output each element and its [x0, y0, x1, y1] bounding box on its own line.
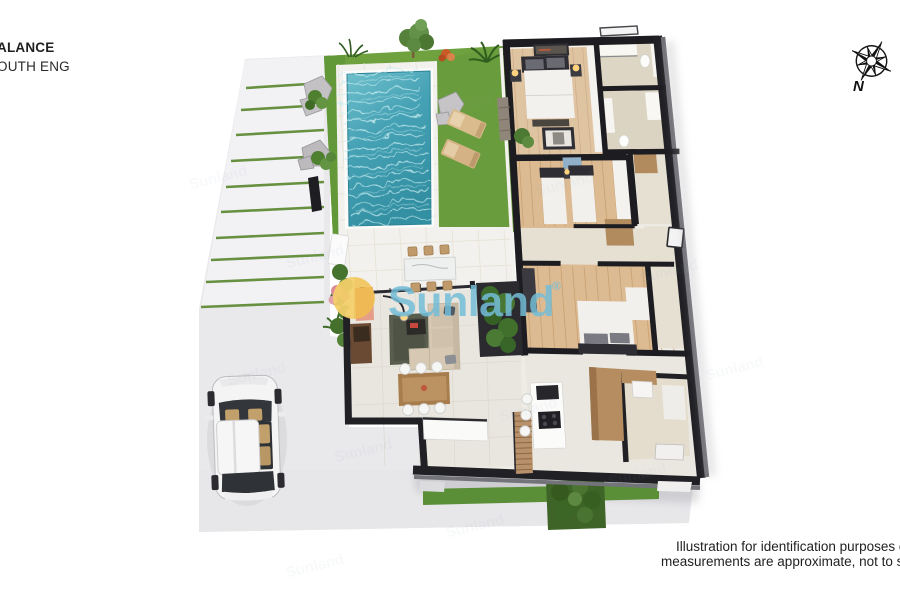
svg-text:Illustration for identificatio: Illustration for identification purposes…	[676, 539, 900, 554]
svg-text:measurements are approximate,: measurements are approximate, not to sca…	[661, 554, 900, 569]
svg-text:N: N	[853, 78, 865, 95]
svg-text:®: ®	[552, 279, 561, 293]
svg-text:OUTH ENG: OUTH ENG	[0, 59, 70, 74]
svg-text:Sunland: Sunland	[388, 278, 554, 326]
svg-text:ALANCE: ALANCE	[0, 40, 54, 55]
